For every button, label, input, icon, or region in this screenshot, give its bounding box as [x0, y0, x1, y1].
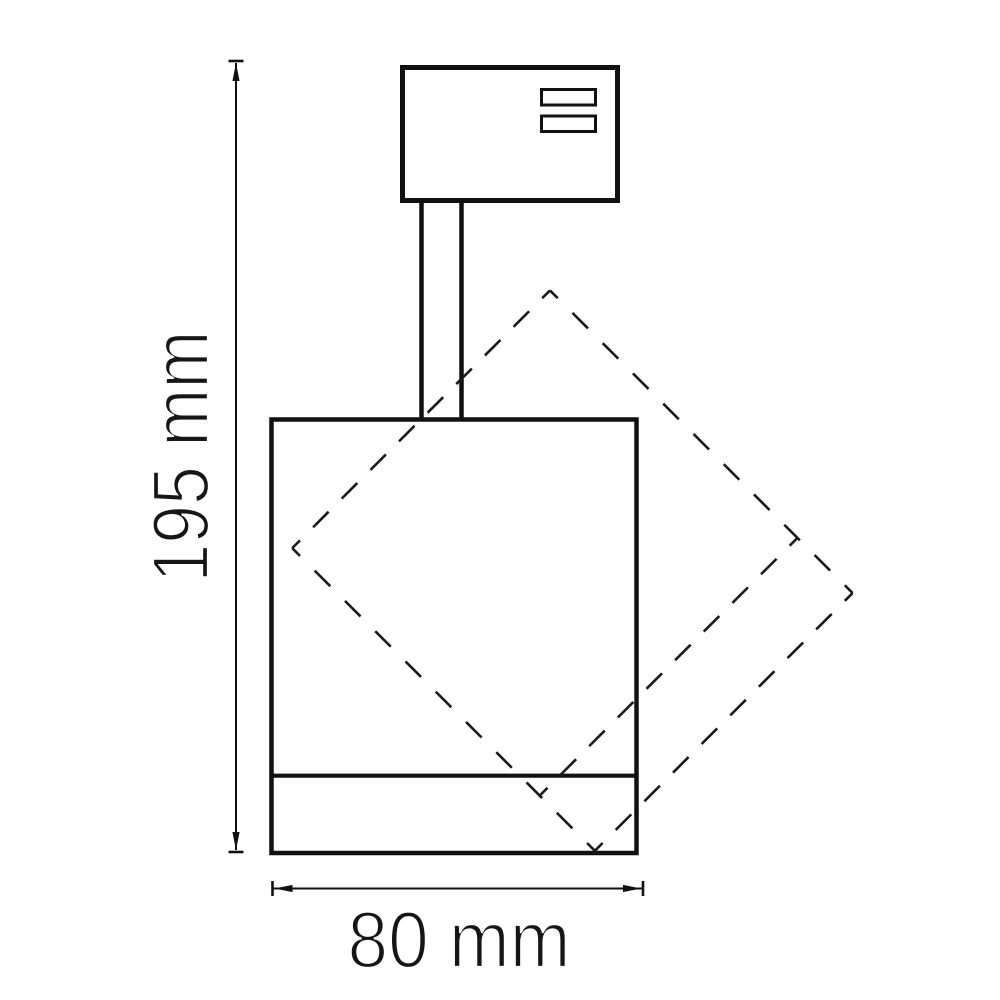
svg-text:195 mm: 195 mm — [136, 331, 225, 583]
svg-text:80 mm: 80 mm — [348, 895, 571, 984]
